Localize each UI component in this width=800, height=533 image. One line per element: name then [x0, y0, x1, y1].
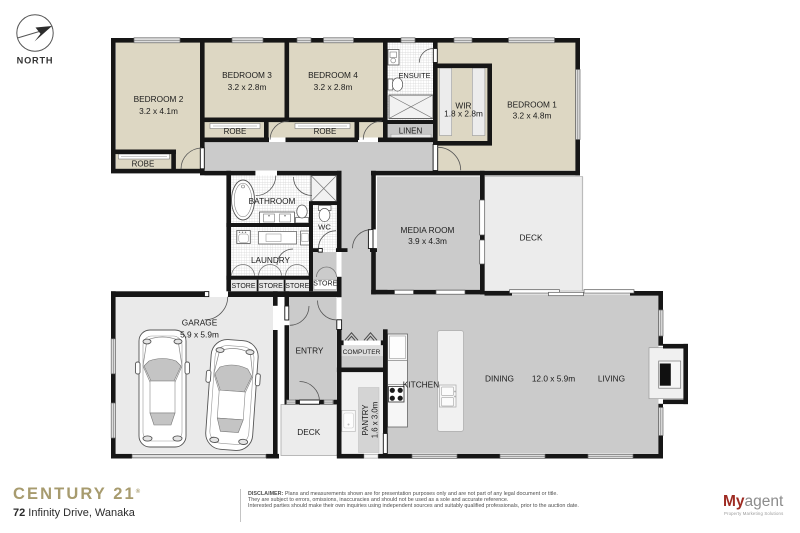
svg-text:BEDROOM 2: BEDROOM 2: [134, 94, 184, 104]
svg-text:1.8 x 2.8m: 1.8 x 2.8m: [444, 109, 483, 119]
svg-text:STORE: STORE: [259, 283, 283, 290]
svg-text:LIVING: LIVING: [598, 374, 625, 384]
svg-text:ENSUITE: ENSUITE: [398, 71, 430, 80]
svg-text:WC: WC: [318, 223, 331, 232]
svg-text:3.9 x 4.3m: 3.9 x 4.3m: [408, 236, 447, 246]
svg-text:3.2 x 4.1m: 3.2 x 4.1m: [139, 106, 178, 116]
svg-text:STORE: STORE: [313, 280, 337, 287]
svg-text:ROBE: ROBE: [224, 127, 247, 136]
svg-text:STORE: STORE: [232, 283, 256, 290]
svg-text:BEDROOM 4: BEDROOM 4: [308, 70, 358, 80]
svg-text:BEDROOM 1: BEDROOM 1: [507, 100, 557, 110]
svg-text:BEDROOM 3: BEDROOM 3: [222, 70, 272, 80]
svg-text:DECK: DECK: [519, 233, 543, 243]
svg-text:PANTRY: PANTRY: [361, 404, 370, 436]
svg-text:LAUNDRY: LAUNDRY: [251, 256, 291, 265]
svg-text:ROBE: ROBE: [314, 127, 337, 136]
svg-text:3.2 x 2.8m: 3.2 x 2.8m: [314, 82, 353, 92]
svg-text:DINING: DINING: [485, 374, 514, 384]
svg-text:NORTH: NORTH: [17, 56, 54, 66]
svg-text:ENTRY: ENTRY: [296, 346, 324, 356]
svg-text:MEDIA ROOM: MEDIA ROOM: [401, 225, 455, 235]
svg-text:COMPUTER: COMPUTER: [343, 349, 381, 356]
svg-text:5.9 x 5.9m: 5.9 x 5.9m: [180, 330, 219, 340]
svg-text:GARAGE: GARAGE: [182, 318, 218, 328]
svg-text:DECK: DECK: [297, 427, 321, 437]
svg-text:ROBE: ROBE: [132, 160, 155, 169]
svg-text:KITCHEN: KITCHEN: [403, 380, 439, 390]
svg-text:1.6 x 3.0m: 1.6 x 3.0m: [371, 402, 380, 438]
svg-text:12.0 x 5.9m: 12.0 x 5.9m: [532, 374, 575, 384]
svg-text:3.2 x 2.8m: 3.2 x 2.8m: [228, 82, 267, 92]
svg-text:LINEN: LINEN: [399, 127, 423, 136]
svg-text:BATHROOM: BATHROOM: [249, 197, 296, 206]
svg-text:3.2 x 4.8m: 3.2 x 4.8m: [513, 110, 552, 120]
svg-text:STORE: STORE: [285, 283, 309, 290]
